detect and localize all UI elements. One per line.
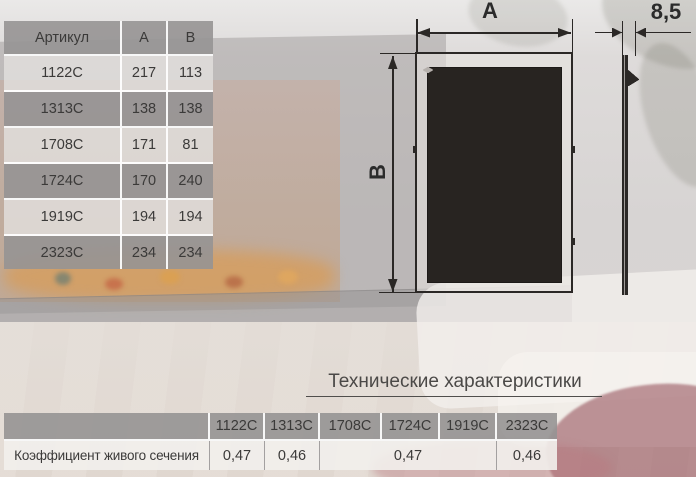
specs-row-label: Коэффициент живого сечения — [4, 441, 210, 470]
dimensions-row: 1708C17181 — [4, 128, 213, 164]
arrowhead-left-icon — [636, 28, 646, 38]
specs-column-header: 2323C — [497, 413, 557, 441]
specs-column-header: 1708C — [320, 413, 382, 441]
specs-value-cell: 0,46 — [497, 441, 557, 470]
dimension-value-cell: 194 — [122, 200, 168, 236]
article-cell: 1313C — [4, 92, 122, 128]
arrowhead-left-icon — [417, 28, 430, 38]
article-cell: 1122C — [4, 56, 122, 92]
dimension-value-cell: 240 — [168, 164, 213, 200]
dimension-value-cell: 170 — [122, 164, 168, 200]
specs-header-row: 1122C1313C1708C1724C1919C2323C — [4, 413, 557, 441]
dimensions-row: 1313C138138 — [4, 92, 213, 128]
dimension-value-cell: 171 — [122, 128, 168, 164]
dimension-extension-line — [635, 21, 636, 56]
dimension-value-cell: 217 — [122, 56, 168, 92]
dimension-value-cell: 138 — [122, 92, 168, 128]
dimensions-row: 2323C234234 — [4, 236, 213, 269]
article-cell: 1724C — [4, 164, 122, 200]
article-cell: 1708C — [4, 128, 122, 164]
dimension-extension-line — [379, 292, 415, 294]
dimensions-table-body: 1122C2171131313C1381381708C171811724C170… — [4, 56, 213, 269]
page: A B 8,5 АртикулAB 1122C2171131 — [0, 0, 696, 477]
dimensions-row: 1919C194194 — [4, 200, 213, 236]
width-dimension-label: A — [472, 0, 508, 22]
arrowhead-down-icon — [388, 279, 398, 292]
dimensions-column-header: B — [168, 21, 213, 56]
specs-table: 1122C1313C1708C1724C1919C2323C Коэффицие… — [4, 413, 557, 470]
arrowhead-up-icon — [388, 56, 398, 69]
frame-clip-notch — [571, 146, 575, 153]
dimension-extension-line — [416, 19, 418, 52]
specs-column-header: 1919C — [440, 413, 497, 441]
dimension-value-cell: 138 — [168, 92, 213, 128]
dimensions-row: 1122C217113 — [4, 56, 213, 92]
specs-value-cell: 0,47 — [320, 441, 497, 470]
dimension-extension-line — [572, 19, 574, 52]
dimensions-row: 1724C170240 — [4, 164, 213, 200]
specs-header-empty-cell — [4, 413, 210, 441]
dimension-extension-line — [622, 21, 623, 56]
grille-side-view-bar — [622, 55, 628, 295]
dimension-value-cell: 234 — [168, 236, 213, 269]
frame-clip-notch — [571, 238, 575, 245]
width-dimension-line — [418, 32, 571, 34]
side-louver-tooth-icon — [628, 70, 639, 86]
dimensions-column-header: A — [122, 21, 168, 56]
dimensions-column-header: Артикул — [4, 21, 122, 56]
height-dimension-label: B — [367, 152, 389, 192]
depth-dimension-label: 8,5 — [640, 1, 692, 23]
specs-value-cell: 0,46 — [265, 441, 320, 470]
dimension-value-cell: 234 — [122, 236, 168, 269]
dimensions-table: АртикулAB 1122C2171131313C1381381708C171… — [4, 21, 213, 269]
dimensions-header-row: АртикулAB — [4, 21, 213, 56]
grille-louvers — [427, 67, 562, 283]
specs-column-header: 1724C — [382, 413, 440, 441]
frame-clip-notch — [413, 146, 417, 153]
specs-title: Технические характеристики — [290, 371, 620, 393]
arrowhead-right-icon — [612, 28, 622, 38]
arrowhead-right-icon — [558, 28, 571, 38]
article-cell: 2323C — [4, 236, 122, 269]
specs-value-cell: 0,47 — [210, 441, 265, 470]
specs-column-header: 1122C — [210, 413, 265, 441]
height-dimension-line — [392, 56, 394, 292]
specs-title-underline — [306, 396, 602, 398]
specs-column-header: 1313C — [265, 413, 320, 441]
article-cell: 1919C — [4, 200, 122, 236]
dimension-value-cell: 81 — [168, 128, 213, 164]
dimension-extension-line — [380, 53, 415, 55]
dimension-value-cell: 113 — [168, 56, 213, 92]
dimension-value-cell: 194 — [168, 200, 213, 236]
specs-value-row: Коэффициент живого сечения 0,470,460,470… — [4, 441, 557, 470]
